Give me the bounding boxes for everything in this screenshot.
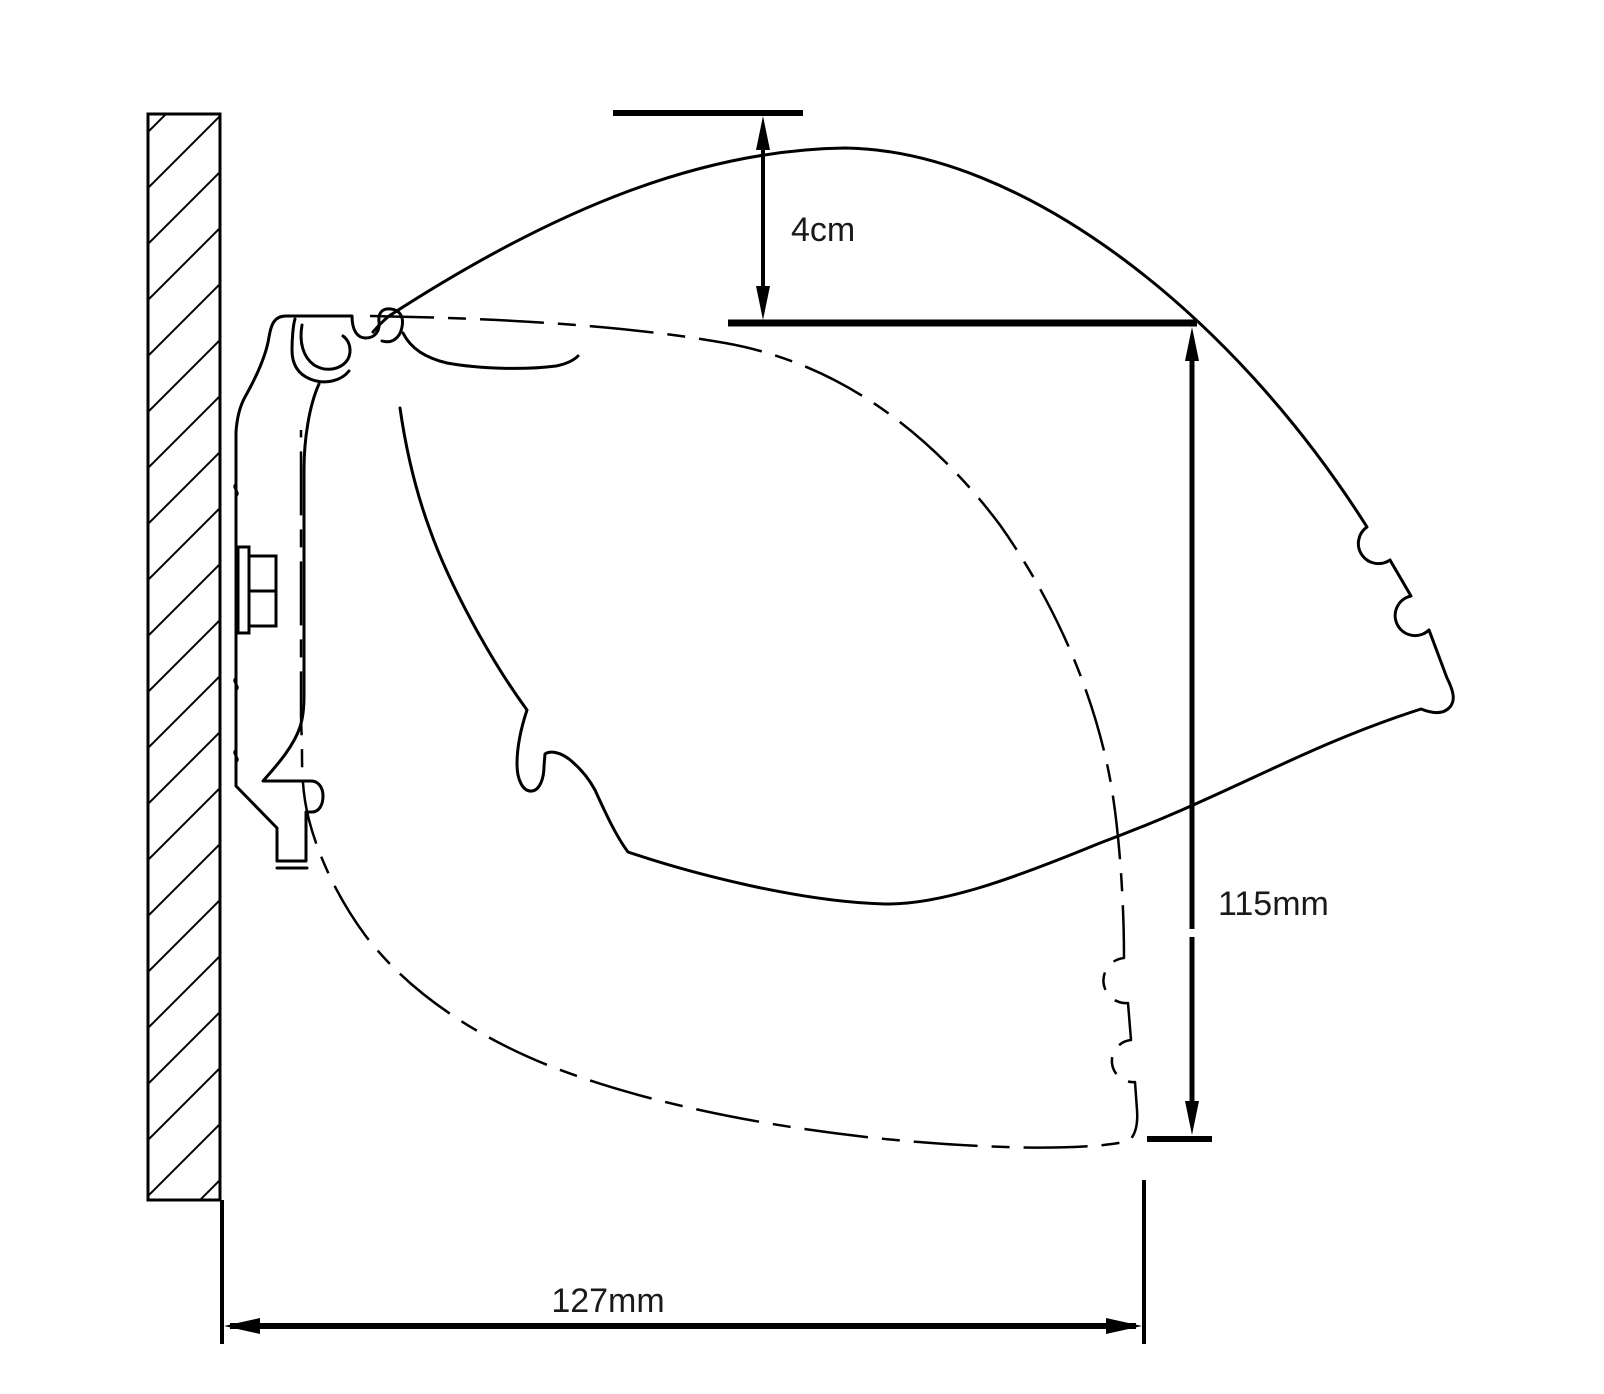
wall-section <box>148 114 220 1200</box>
mounting-bolt <box>238 547 276 633</box>
dimension-127mm-arrowhead-right-icon <box>1106 1318 1142 1334</box>
dimension-4cm: 4cm <box>613 113 1197 323</box>
cassette-closed-outline-path <box>373 148 1453 904</box>
dimension-127mm-arrowhead-left-icon <box>224 1318 260 1334</box>
awning-bracket-section-drawing: 4cm 115mm 127mm <box>0 0 1604 1394</box>
cassette-profile-open <box>301 316 1137 1148</box>
cassette-profile-closed <box>373 148 1453 904</box>
dimension-127mm: 127mm <box>222 1180 1144 1344</box>
bracket-jaw-bead-path <box>301 325 350 369</box>
dimension-4cm-label: 4cm <box>791 211 855 249</box>
dimension-4cm-arrowhead-up-icon <box>756 116 770 150</box>
dimension-115mm: 115mm <box>1147 327 1329 1139</box>
bolt-washer <box>238 547 249 633</box>
dimension-127mm-label: 127mm <box>551 1282 664 1320</box>
wall-hatch-rect <box>148 114 220 1200</box>
dimension-115mm-arrowhead-down-icon <box>1185 1101 1199 1135</box>
cassette-open-outline-path <box>301 316 1137 1148</box>
dimension-115mm-arrowhead-up-icon <box>1185 327 1199 361</box>
dimension-4cm-arrowhead-down-icon <box>756 286 770 320</box>
dimension-115mm-label: 115mm <box>1218 885 1329 923</box>
technical-drawing-canvas: 4cm 115mm 127mm <box>0 0 1604 1394</box>
cassette-closed-inner-jaw-path <box>403 333 578 368</box>
